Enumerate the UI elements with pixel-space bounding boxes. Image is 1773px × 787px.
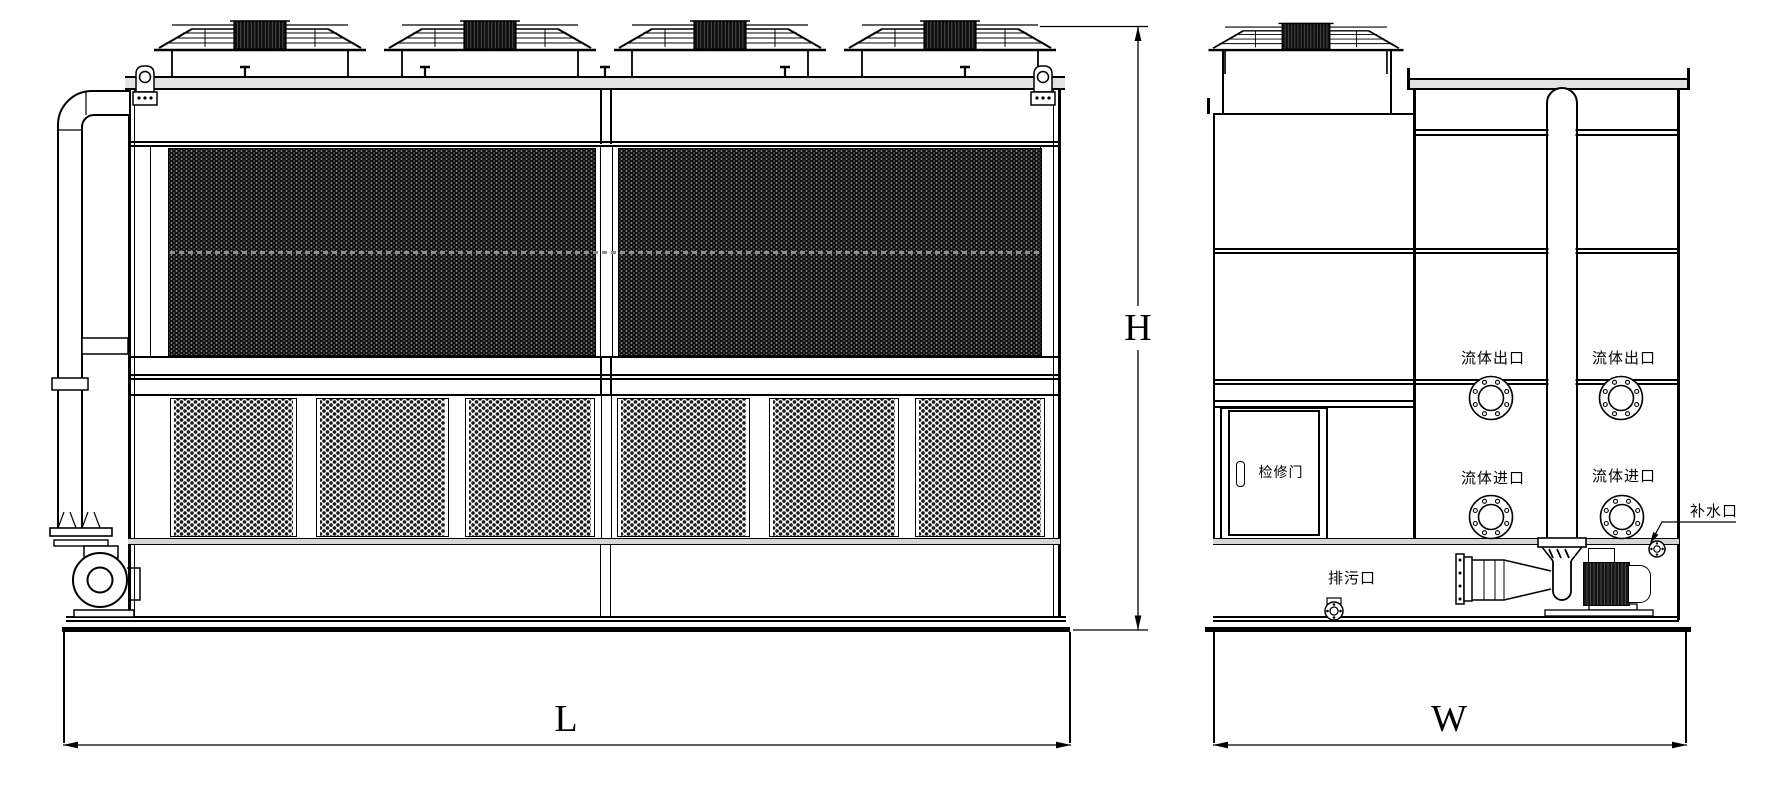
dimension-label-height: H [1112,306,1164,350]
side-door-handle [1236,461,1245,487]
front-fan-3 [614,21,826,76]
side-motor-body [1583,562,1630,606]
front-fan-2 [384,21,596,76]
drawing-canvas: L H W 流体出口 流体出口 流体进口 流体进口 补水口 排污口 检修门 [0,0,1773,787]
side-riser-pipe [1538,88,1586,561]
label-access-door: 检修门 [1254,465,1308,482]
fluid-outlet-flange-left [1470,377,1513,420]
front-fan-4 [844,21,1056,76]
front-discharge-pipe [50,91,129,546]
makeup-water-fitting [1649,522,1736,557]
line-art-layer [0,0,1773,787]
label-fluid-outlet-left: 流体出口 [1460,351,1526,368]
front-pump [73,546,140,617]
side-fan [1208,23,1403,74]
label-fluid-inlet-right: 流体进口 [1591,469,1657,486]
dimension-label-width: W [1404,697,1494,741]
fluid-inlet-flange-left [1470,496,1513,539]
label-makeup-water-port: 补水口 [1688,504,1740,521]
front-fan-1 [154,21,366,76]
dimension-label-length: L [521,697,611,741]
fluid-outlet-flange-right [1600,377,1643,420]
drain-port-fitting [1325,598,1343,620]
label-drain-port: 排污口 [1326,571,1378,588]
l-dimension [63,742,1071,749]
fluid-inlet-flange-right [1601,496,1644,539]
side-motor-end-cap [1628,565,1651,603]
top-rail-bolts [240,67,970,76]
lifting-lug-right [1031,66,1055,105]
w-dimension [1213,742,1687,749]
label-fluid-outlet-right: 流体出口 [1591,351,1657,368]
lifting-lug-left [133,66,157,105]
label-fluid-inlet-left: 流体进口 [1460,471,1526,488]
